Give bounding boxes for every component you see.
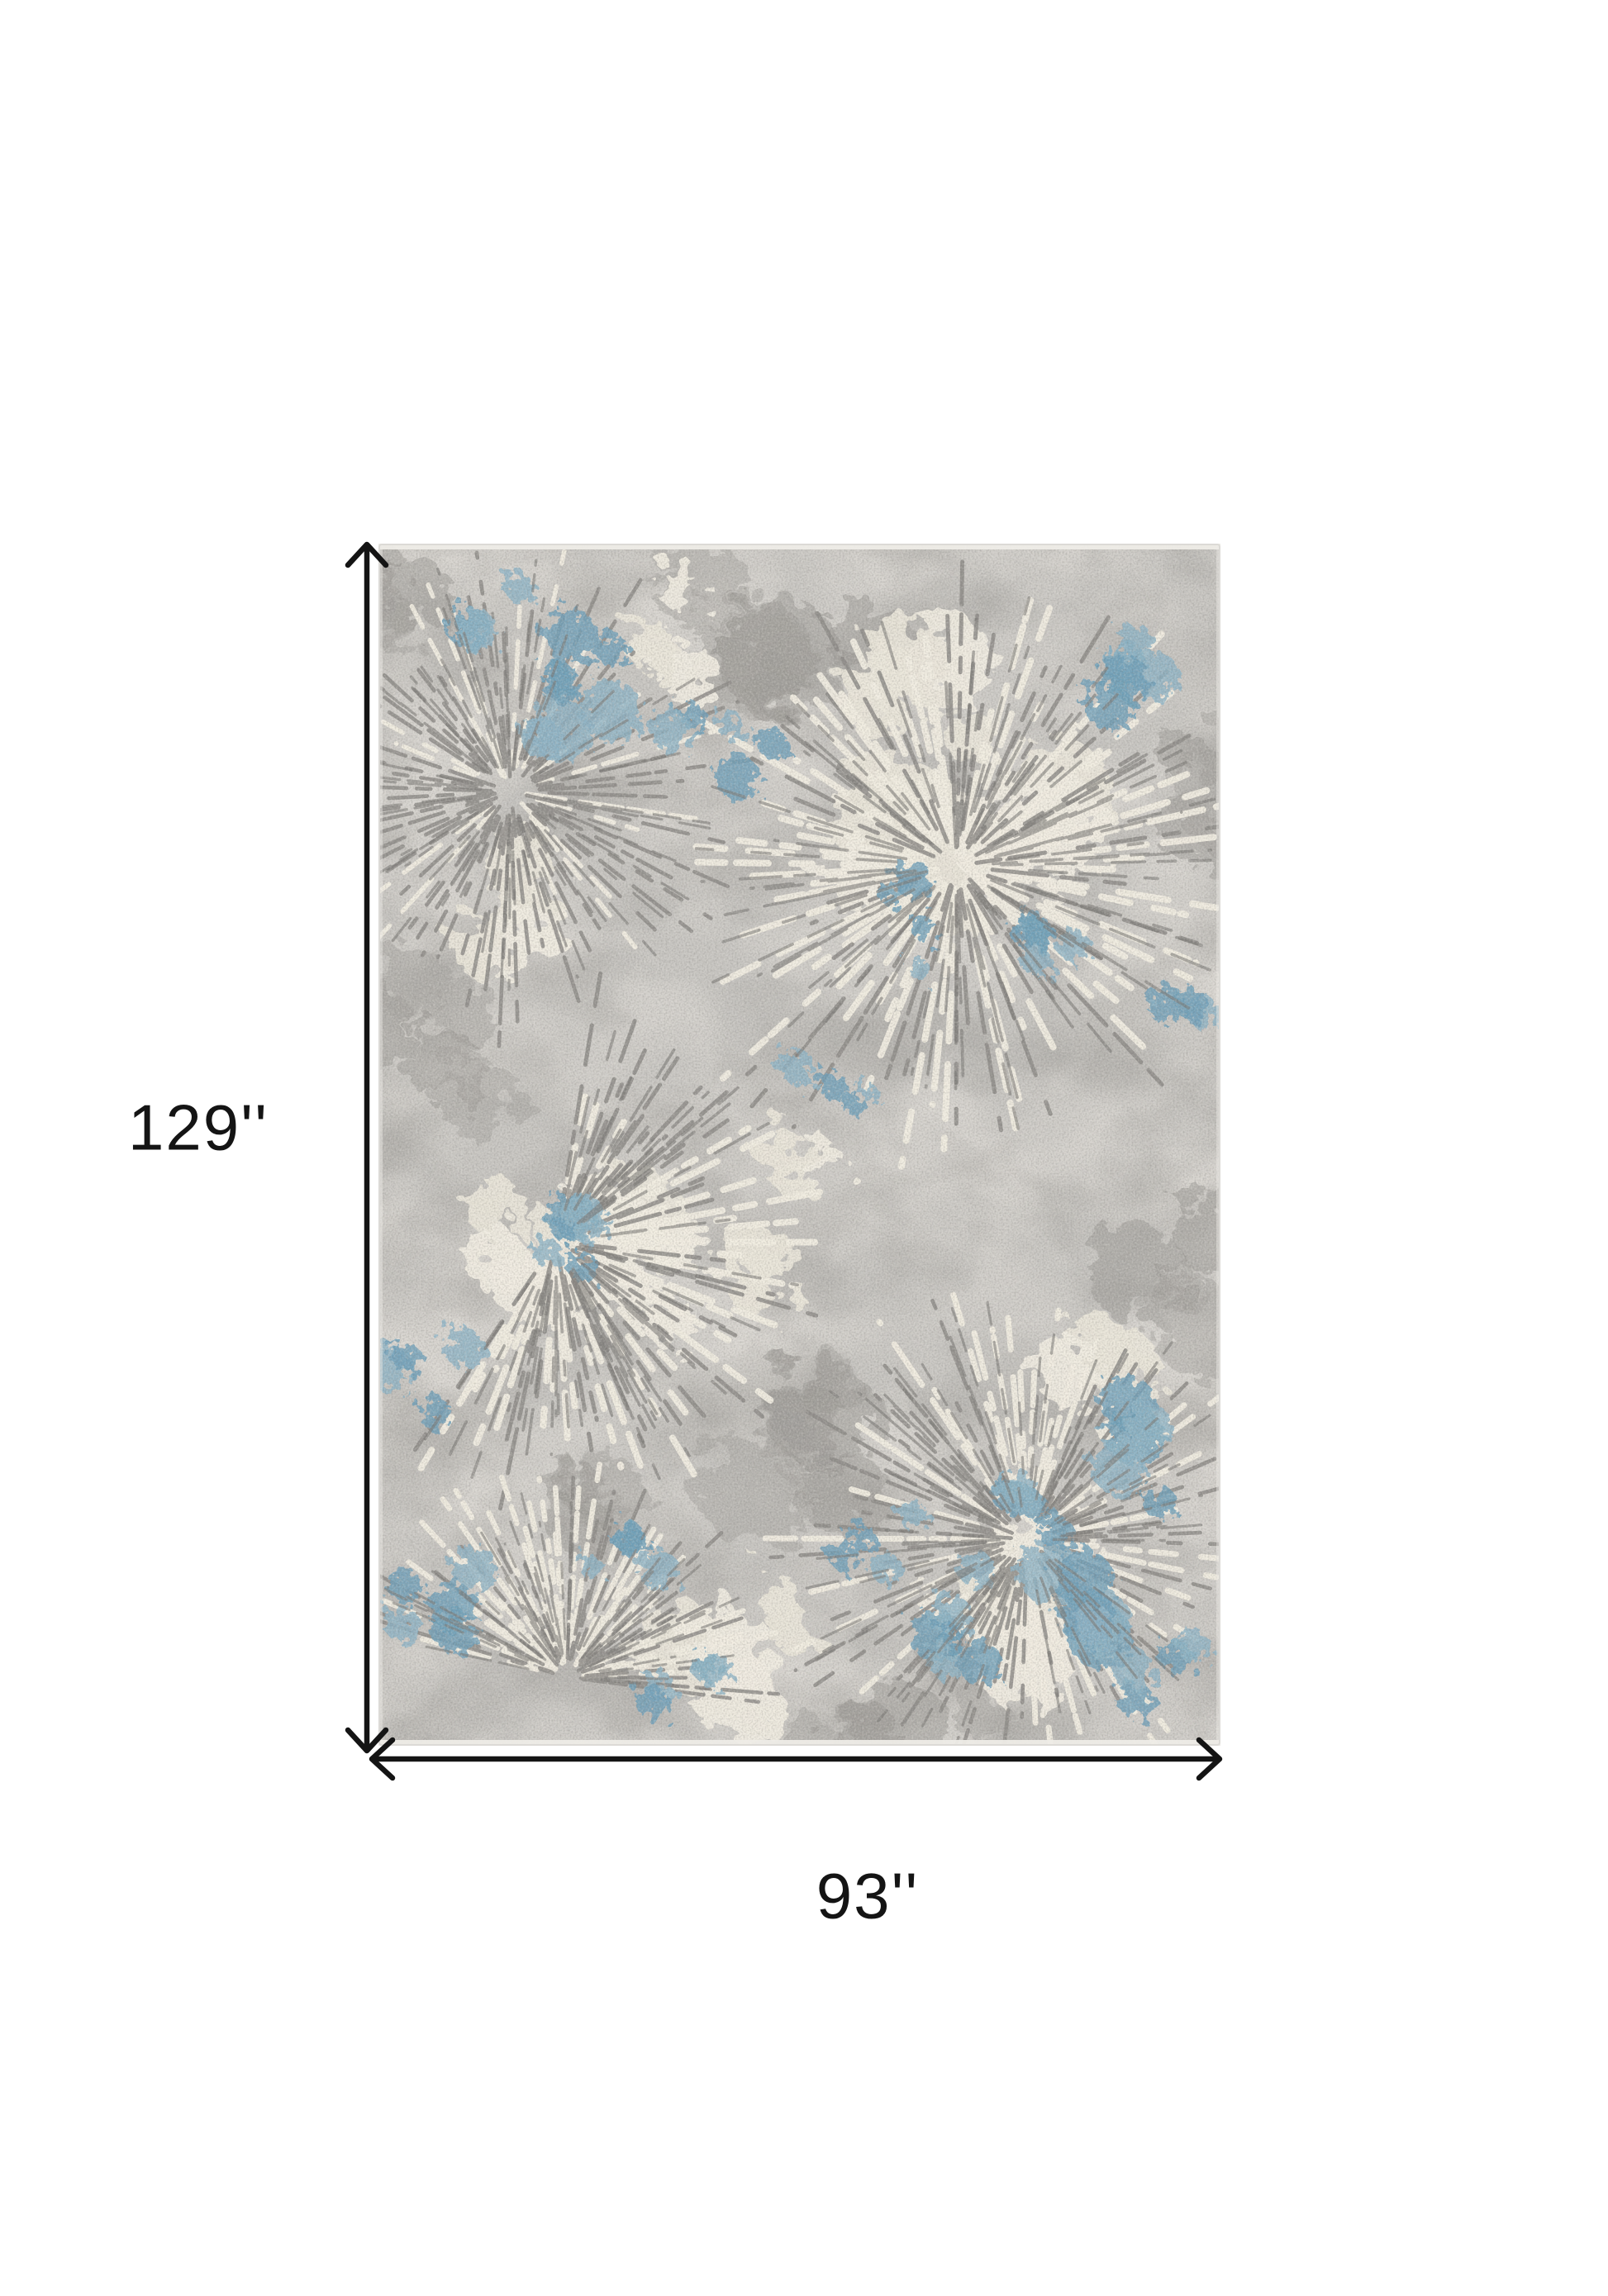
rug-image	[378, 544, 1220, 1746]
rug-art	[378, 544, 1220, 1746]
height-dimension-label: 129''	[128, 1095, 269, 1159]
width-dimension-label: 93''	[816, 1863, 920, 1928]
product-dimension-image: 129'' 93''	[0, 0, 1608, 2296]
